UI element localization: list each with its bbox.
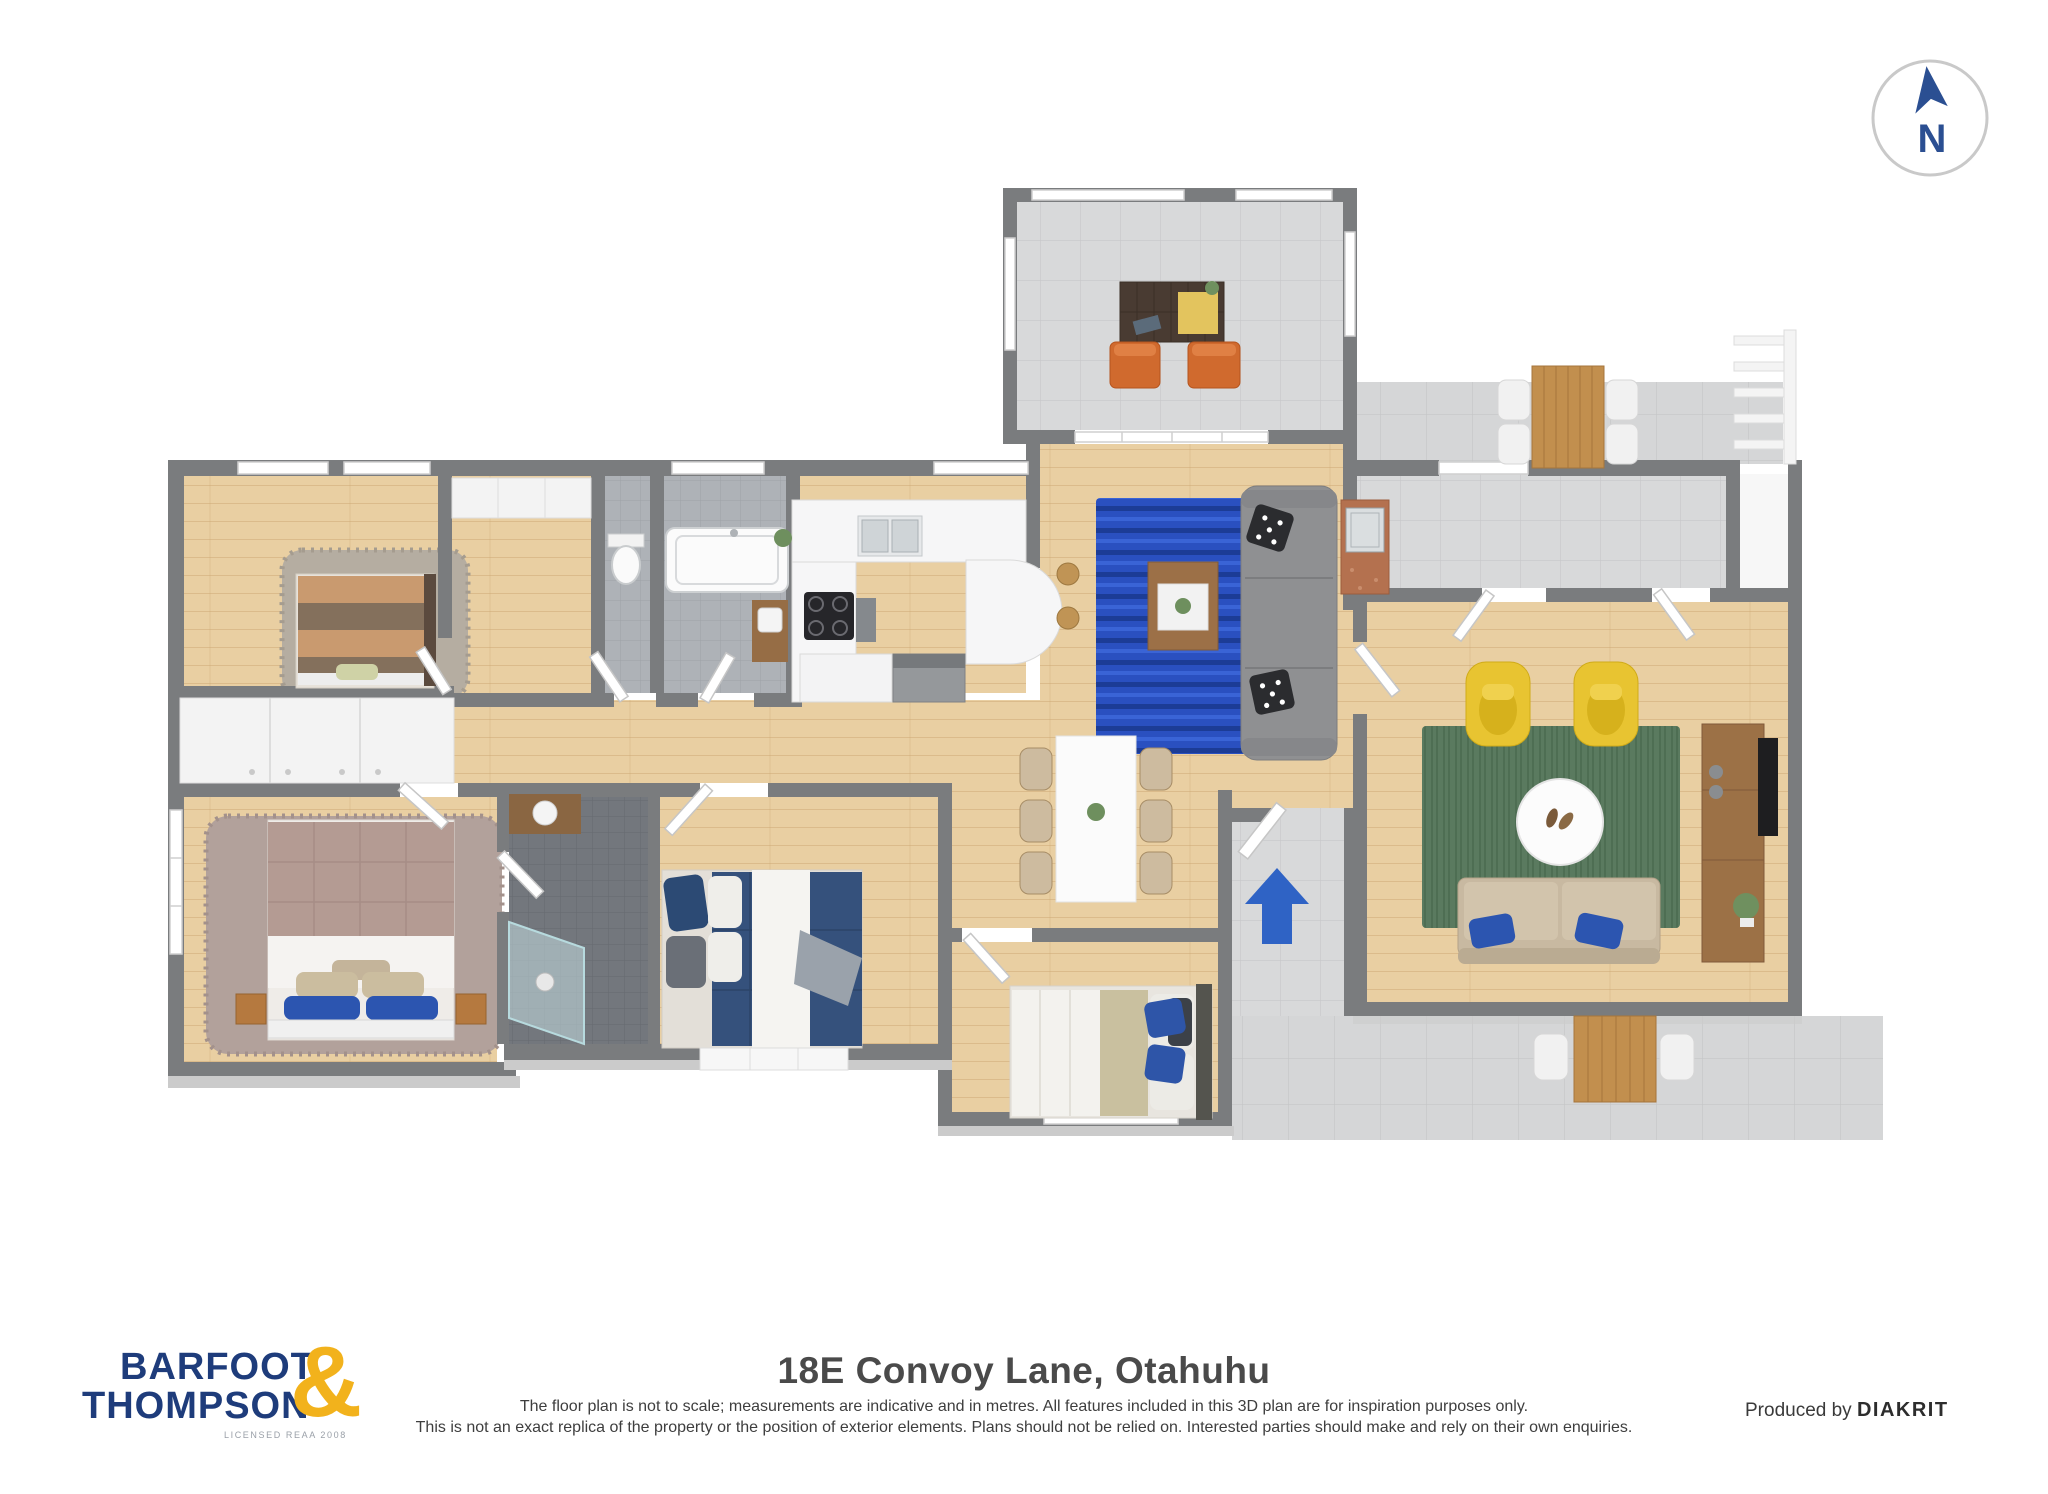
orange-chair [1188,342,1240,388]
headboard [268,1020,454,1038]
dining-furniture [1020,736,1172,902]
pillow-blue [284,996,360,1020]
shower-drain [536,973,554,991]
breakfast-bar [966,560,1062,664]
sunroom-window [1345,232,1355,336]
outdoor-dining-table [1574,1016,1656,1102]
bathtub [666,528,788,592]
bar-stool [1057,607,1079,629]
kitchen-window [934,462,1028,474]
pillow [336,664,378,680]
bedroom-1-window [238,462,328,474]
barfoot-thompson-logo: BARFOOT THOMPSON & LICENSED REAA 2008 [82,1348,382,1440]
bar-stool [1057,563,1079,585]
cooktop [804,592,854,640]
island-bench-white [800,654,892,702]
produced-by-brand: DIAKRIT [1857,1399,1949,1421]
tv-screen [1758,738,1778,836]
beige-sofa [1458,878,1660,964]
sunroom-window [1236,190,1332,200]
pillow [708,932,742,982]
compass: N [1873,61,1987,175]
plant-icon [774,529,792,547]
oven [856,598,876,642]
bedroom-1-window [344,462,430,474]
island-bench-gray [893,654,965,702]
pillow-navy [662,873,709,932]
laundry-bench [1341,500,1389,594]
bed [268,820,454,1040]
basin [533,801,557,825]
deck-railing [1734,330,1796,464]
produced-by: Produced by DIAKRIT [1745,1399,1949,1422]
beige-throw [1100,990,1148,1116]
pillow-gray [666,936,706,988]
master-window [170,810,182,954]
table-tray [1178,292,1218,334]
master-furniture [236,820,486,1040]
laundry-floor [1357,474,1726,588]
bed [296,574,436,688]
window-bench [700,1048,848,1070]
linen-cupboard [452,478,591,518]
coffee-table [1148,562,1218,650]
orange-chair [1110,342,1160,388]
yellow-armchair [1466,662,1530,746]
pillow-blue [366,996,438,1020]
headboard [1196,984,1212,1120]
outdoor-chair [1660,1034,1694,1080]
compass-label: N [1918,117,1947,161]
sunroom-window [1005,238,1015,350]
produced-by-prefix: Produced by [1745,1400,1852,1421]
hall-nook-floor [1740,474,1788,588]
pillow [708,876,742,928]
yellow-armchair [1574,662,1638,746]
bed [1010,984,1212,1120]
plant-icon [1087,803,1105,821]
bathroom-window [672,462,764,474]
bedroom-2-furniture [662,870,862,1070]
pillow [296,972,358,998]
logo-ampersand: & [290,1332,362,1432]
nightstand [236,994,266,1024]
bed [662,870,862,1048]
floor-plan-graphic: N [0,0,2048,1494]
floor-plan-page: N 18E Convoy Lane, Otahuhu The floor pla… [0,0,2048,1494]
wardrobe [180,698,454,783]
sunroom-window [1032,190,1184,200]
bedroom-3-furniture [1010,984,1212,1120]
hallway-floor [454,700,1040,783]
plant-icon [1205,281,1219,295]
patterned-cushion [1248,668,1295,715]
outdoor-chair [1534,1034,1568,1080]
pillow-blue [1144,1044,1187,1085]
gray-sofa [1241,486,1337,760]
plant-icon [1733,893,1759,919]
outdoor-dining-table [1532,366,1604,468]
laundry-sink [1346,508,1384,552]
nightstand [456,994,486,1024]
entry-walkway-floor [1232,1016,1353,1140]
round-table [1517,779,1603,865]
pillow-blue [1143,997,1187,1039]
pillow [362,972,424,998]
plant-icon [1175,598,1191,614]
